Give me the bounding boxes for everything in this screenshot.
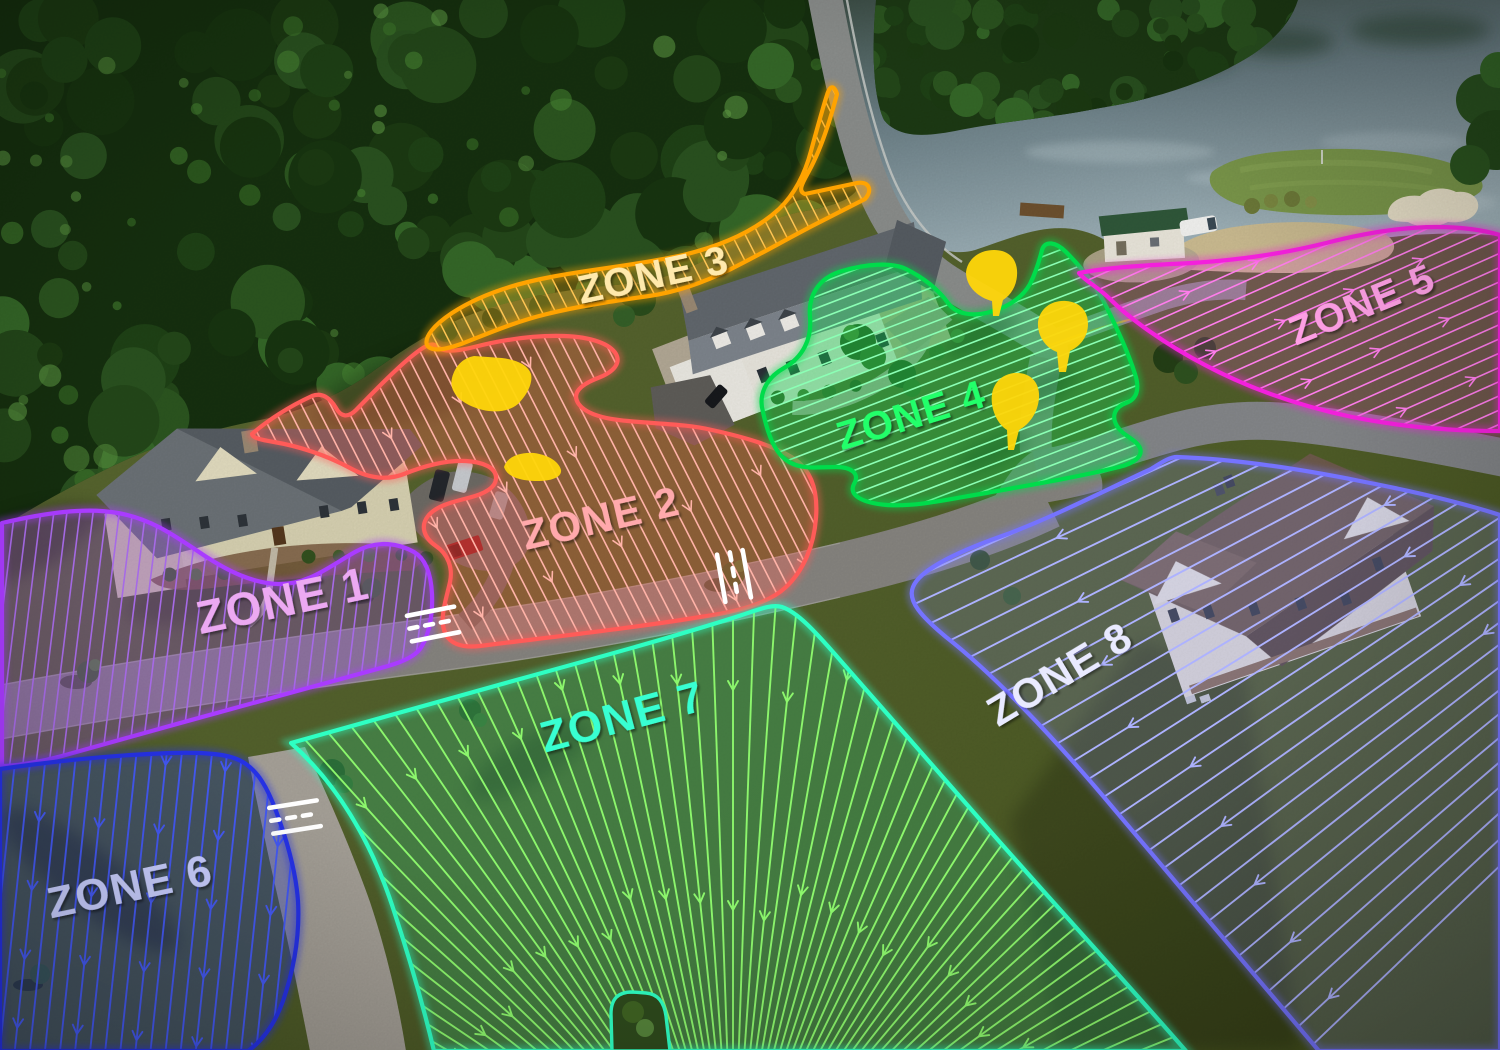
aerial-zone-map: ZONE 1 ZONE 2 ZONE 3 ZONE 4 ZONE 5 ZONE … <box>0 0 1500 1050</box>
vignette <box>0 0 1500 1050</box>
